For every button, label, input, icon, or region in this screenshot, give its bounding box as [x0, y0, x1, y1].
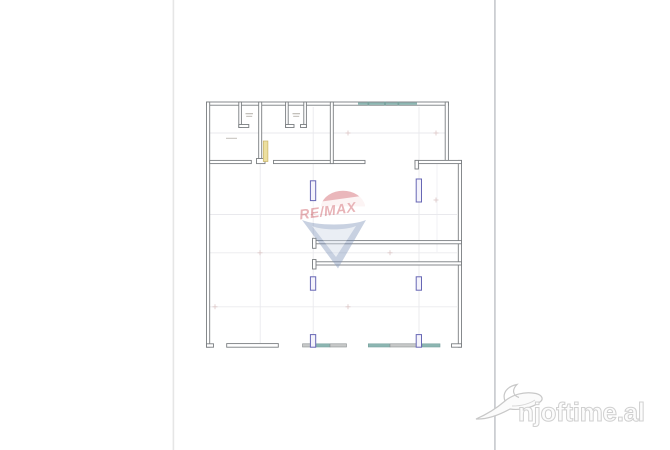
wall-wc2-stub-foot [286, 125, 294, 128]
wall-left [207, 102, 210, 347]
bottom-wall-segments [227, 344, 440, 348]
window-glass [358, 103, 417, 105]
structural-column [310, 335, 315, 348]
floor-plan-drawing: RE/MAX njoftime.al [0, 0, 670, 450]
grid-cross [434, 131, 439, 136]
grid-cross [213, 304, 218, 309]
page-edge-left-line [173, 0, 175, 450]
fixture-mark [226, 138, 237, 139]
wall-wc1-stub-foot [239, 125, 249, 128]
room-label-mark [293, 113, 301, 117]
window-mullion [384, 102, 385, 105]
bottom-wall-plain [227, 344, 279, 348]
wall-wc3-stub [304, 102, 307, 128]
wall-right-lower [458, 160, 461, 347]
remax-text: RE/MAX [298, 199, 358, 223]
structural-column [310, 277, 315, 290]
wall-mid-left [210, 160, 252, 163]
bottom-window [368, 344, 390, 347]
page-edge-right-line [494, 0, 496, 450]
structural-column [416, 335, 421, 348]
grid-cross-marks [213, 131, 439, 310]
structural-column [310, 181, 315, 201]
grid-cross [388, 250, 393, 255]
wall-right-bottom-cap [452, 344, 462, 347]
wall-wc1-stub [239, 102, 242, 128]
njoftime-text: njoftime.al [518, 397, 645, 427]
bottom-window [422, 344, 440, 347]
wall-a-end-cap [313, 238, 317, 248]
bottom-wall-solid [330, 344, 347, 347]
njoftime-watermark: njoftime.al [476, 385, 645, 428]
grid-cross [434, 198, 439, 203]
bottom-window [316, 344, 330, 347]
structural-column [416, 277, 421, 290]
wall-b-end-cap [313, 260, 317, 270]
wall-mid-center [274, 160, 366, 163]
wall-right-upper [445, 102, 448, 162]
wall-wc-divider [259, 102, 262, 159]
structural-column [416, 179, 421, 202]
door-symbol [263, 141, 268, 162]
grid-cross [346, 304, 351, 309]
grid-cross [346, 131, 351, 136]
window-mullion [398, 102, 399, 105]
label-stroke [293, 116, 299, 117]
grid-cross [258, 250, 263, 255]
wall-mid-right-cap [415, 160, 418, 169]
label-stroke [246, 113, 254, 114]
floor-plan-photo: RE/MAX njoftime.al [0, 0, 670, 450]
wall-mid-right [415, 160, 462, 163]
bottom-wall-solid [390, 344, 417, 347]
window-mullion [368, 102, 369, 105]
wall-wc2-stub [286, 102, 289, 128]
remax-watermark: RE/MAX [298, 191, 367, 269]
wall-divider-main [330, 102, 333, 164]
label-stroke [246, 116, 252, 117]
wall-left-bottom-cap [207, 344, 214, 347]
label-stroke [293, 113, 301, 114]
wall-wc3-stub-foot [301, 125, 307, 128]
room-label-mark [246, 113, 254, 117]
